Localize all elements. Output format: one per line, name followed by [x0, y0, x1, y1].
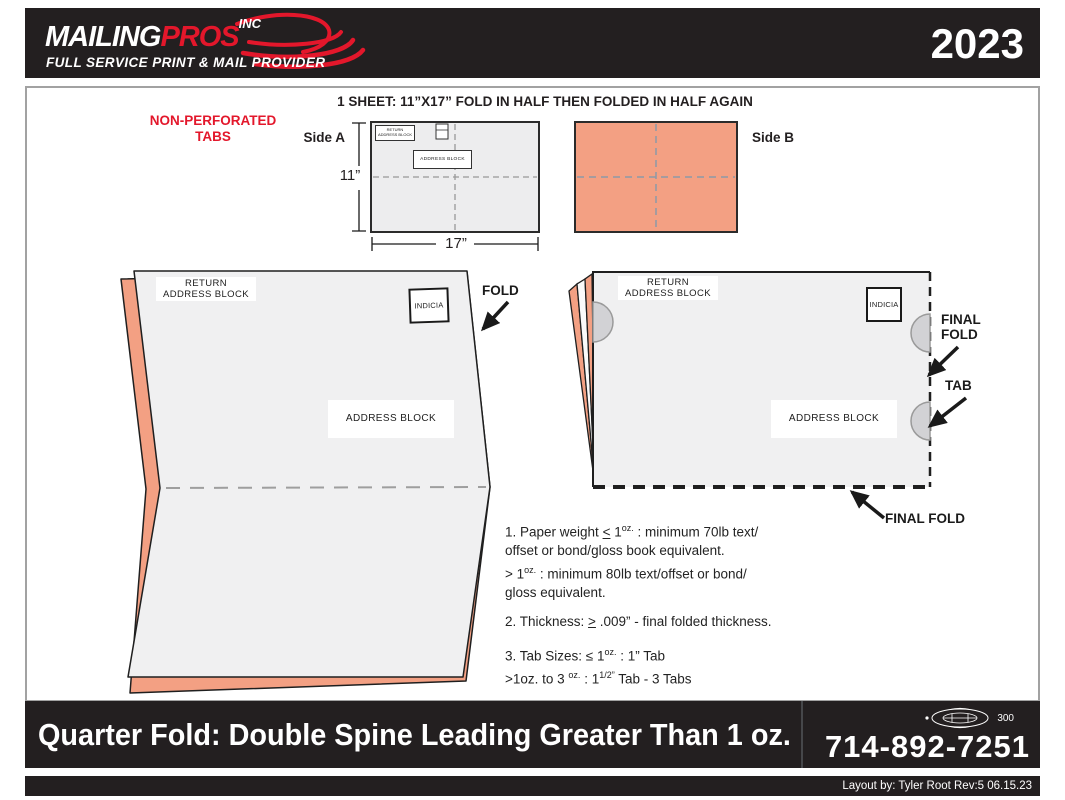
final-step-address-block: ADDRESS BLOCK	[771, 400, 897, 438]
side-a-return-line2: ADDRESS BLOCK	[376, 132, 414, 137]
union-label: 300	[924, 707, 1014, 729]
brand-tagline: FULL SERVICE PRINT & MAIL PROVIDER	[46, 55, 325, 70]
tab-callout-label: TAB	[945, 378, 972, 393]
tab-arrow-icon	[930, 398, 966, 426]
union-bug-icon	[924, 707, 992, 729]
side-b-label: Side B	[752, 130, 794, 145]
union-number: 300	[997, 713, 1014, 724]
side-a-label: Side A	[290, 130, 345, 145]
fold-step-return-address-block: RETURN ADDRESS BLOCK	[156, 277, 256, 301]
final-fold-right-arrow-icon	[929, 347, 958, 375]
footer-bar: Quarter Fold: Double Spine Leading Great…	[25, 701, 1040, 768]
final-fold-right-label: FINAL FOLD	[941, 312, 996, 342]
footer-title: Quarter Fold: Double Spine Leading Great…	[38, 717, 791, 753]
side-a-indicia-mark	[436, 124, 448, 139]
brand-logo: MAILINGPROSINC	[45, 16, 261, 54]
fold-step-front-sheet	[128, 271, 490, 677]
layout-credit: Layout by: Tyler Root Rev:5 06.15.23	[842, 776, 1032, 796]
fold-step-return-line1: RETURN	[156, 278, 256, 289]
footer-divider	[801, 701, 803, 768]
non-perforated-note-line2: TABS	[138, 129, 288, 145]
phone-number: 714-892-7251	[825, 729, 1030, 765]
non-perforated-note-line1: NON-PERFORATED	[138, 113, 288, 129]
fold-step-address-block: ADDRESS BLOCK	[328, 400, 454, 438]
fold-step-indicia-box: INDICIA	[408, 287, 449, 323]
final-fold-bottom-arrow-icon	[852, 492, 884, 518]
final-fold-right-line2: FOLD	[941, 327, 996, 342]
final-step-return-line2: ADDRESS BLOCK	[618, 288, 718, 299]
final-step-return-address-block: RETURN ADDRESS BLOCK	[618, 276, 718, 300]
brand-accent: PROS	[160, 21, 238, 53]
fold-callout-label: FOLD	[482, 283, 519, 298]
side-a-address-block: ADDRESS BLOCK	[413, 150, 472, 169]
brand-suffix: INC	[239, 16, 261, 31]
spec-list: 1. Paper weight < 1oz. : minimum 70lb te…	[505, 519, 845, 689]
side-a-return-address-block: RETURN ADDRESS BLOCK	[375, 125, 415, 141]
diagram-title: 1 SHEET: 11”X17” FOLD IN HALF THEN FOLDE…	[245, 94, 845, 109]
credit-bar: Layout by: Tyler Root Rev:5 06.15.23	[25, 776, 1040, 796]
brand-main: MAILING	[45, 21, 160, 53]
fold-arrow-icon	[483, 302, 508, 329]
spec-sheet-page: MAILINGPROSINC FULL SERVICE PRINT & MAIL…	[0, 0, 1065, 800]
fold-step-return-line2: ADDRESS BLOCK	[156, 289, 256, 300]
height-dimension-label: 11”	[334, 167, 366, 184]
non-perforated-note: NON-PERFORATED TABS	[138, 113, 288, 145]
final-step-return-line1: RETURN	[618, 277, 718, 288]
width-dimension-label: 17”	[438, 235, 474, 252]
final-step-indicia-box: INDICIA	[866, 287, 902, 322]
final-fold-right-line1: FINAL	[941, 312, 996, 327]
final-fold-bottom-label: FINAL FOLD	[885, 511, 965, 526]
